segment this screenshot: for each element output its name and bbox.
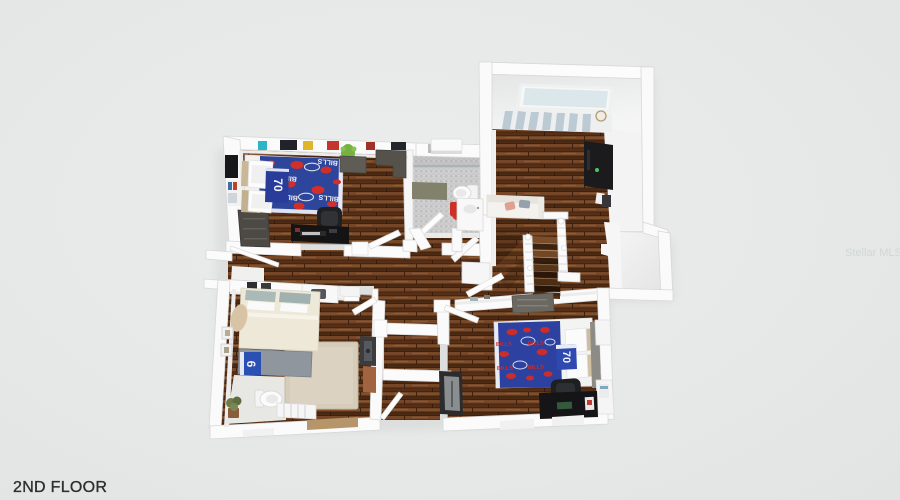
svg-text:BILLS: BILLS — [528, 340, 544, 347]
svg-text:2ND FLOOR: 2ND FLOOR — [13, 479, 107, 496]
svg-text:BILLS: BILLS — [497, 365, 513, 372]
svg-text:70: 70 — [560, 351, 572, 363]
svg-text:BILLS: BILLS — [528, 364, 544, 371]
svg-text:BILLS: BILLS — [496, 341, 512, 348]
svg-text:Stellar MLS: Stellar MLS — [845, 247, 900, 259]
svg-text:6: 6 — [244, 361, 258, 368]
svg-text:70: 70 — [271, 178, 285, 192]
